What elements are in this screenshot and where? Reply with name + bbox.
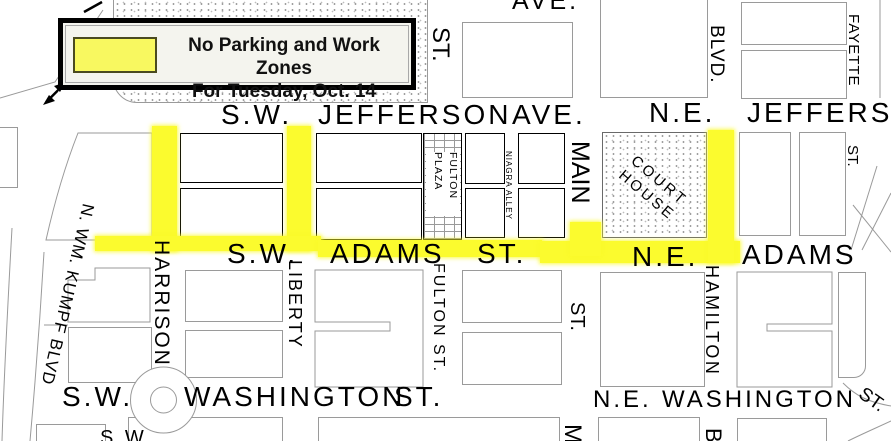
street-label-hamilton: HAMILTON: [703, 265, 721, 376]
street-label-washington-sw-prefix: S.W.: [62, 383, 133, 411]
street-label-jefferson-sw: JEFFERSON: [318, 101, 511, 129]
street-label-jefferson-sw-suffix: AVE.: [512, 101, 586, 129]
street-label-hamilton-partial: B: [702, 428, 724, 441]
street-label-adams-sw-suffix: ST.: [477, 240, 526, 268]
legend-box: No Parking and Work Zones For Tuesday, O…: [58, 18, 416, 90]
street-label-fayette-st: ST.: [845, 145, 860, 167]
street-label-niagra-alley: NIAGRA ALLEY: [504, 151, 512, 220]
street-label-adams-sw: ADAMS: [330, 240, 445, 268]
street-label-jefferson-ne-prefix: N.E.: [649, 99, 715, 127]
street-label-fulton-st: FULTON ST.: [430, 263, 446, 373]
street-label-jefferson-sw-prefix: S.W.: [221, 101, 292, 129]
street-label-washington-sw: WASHINGTON: [184, 383, 405, 411]
legend-title-line2: For Tuesday, Oct. 14: [163, 80, 405, 103]
notched-block: [315, 270, 423, 387]
street-label-sw-partial: S.W.: [100, 428, 154, 441]
legend-title-line1: No Parking and Work Zones: [163, 34, 405, 80]
street-label-fayette: FAYETTE: [846, 14, 861, 87]
street-label-adams-ne: ADAMS: [742, 241, 857, 269]
street-label-main-st: ST.: [567, 302, 587, 331]
notched-block: [737, 272, 832, 387]
street-label-harrison: HARRISON: [151, 240, 172, 367]
street-label-ave-top: AVE.: [512, 0, 579, 14]
work-zone-liberty: [287, 126, 311, 251]
street-label-fulton-st-top: ST.: [428, 27, 452, 62]
se-curved-street: [848, 421, 891, 441]
street-label-liberty: LIBERTY: [286, 260, 304, 349]
fulton-plaza-line2: PLAZA: [430, 152, 445, 216]
street-label-main: MAIN: [567, 141, 592, 204]
street-label-washington-ne-prefix: N.E.: [593, 388, 652, 412]
work-zone-hamilton: [708, 130, 734, 263]
nw-black-tick: [84, 2, 102, 12]
work-zone-main-stub: [570, 222, 601, 256]
diagonal-street: [853, 205, 891, 252]
kumpf-blvd-east-edge: [30, 252, 44, 441]
work-zone-harrison: [152, 126, 177, 251]
street-label-washington-sw-suffix: ST.: [394, 383, 443, 411]
street-label-adams-ne-prefix: N.E.: [632, 243, 698, 271]
street-label-blvd: BLVD.: [707, 25, 726, 84]
fulton-plaza-label: FULTON PLAZA: [426, 152, 460, 216]
street-label-washington-ne: WASHINGTON: [662, 388, 856, 412]
street-label-jefferson-ne: JEFFERSON: [747, 99, 891, 127]
street-map: AVE. S.W. JEFFERSON AVE. N.E. JEFFERSON …: [0, 0, 891, 441]
curved-block: [46, 133, 152, 240]
roundabout-inner: [151, 387, 177, 413]
street-label-main-partial: M: [560, 424, 584, 441]
kumpf-blvd-west-edge: [2, 228, 12, 441]
fulton-plaza-line1: FULTON: [445, 152, 460, 216]
yellow-zone-swatch: [73, 37, 157, 73]
